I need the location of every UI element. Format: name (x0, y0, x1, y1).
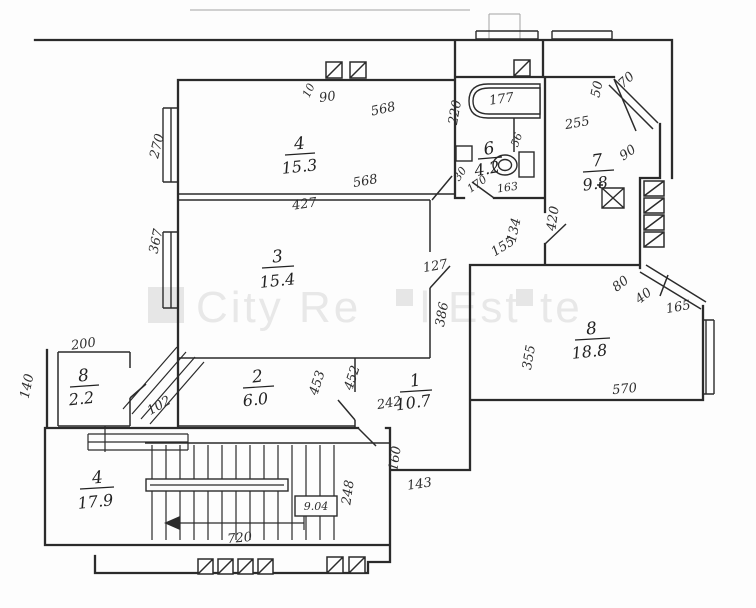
room-number: 8 (585, 318, 598, 339)
outer-walls (35, 40, 703, 573)
watermark-block-icon (396, 289, 413, 306)
room-area: 6.0 (242, 389, 269, 411)
room-label-6: 6 4.2 (472, 138, 502, 180)
direction-arrow-line (178, 516, 304, 530)
dim-label: 453 (306, 369, 328, 398)
dim-label: 140 (18, 373, 38, 400)
room-number: 7 (591, 150, 605, 171)
dim-label: 50 (589, 80, 607, 99)
watermark-text: City Re (196, 283, 361, 332)
dim-label: 200 (69, 335, 97, 353)
room-label-2: 2 6.0 (242, 367, 274, 411)
dim-label: 165 (665, 298, 692, 317)
room-label-4: 4 15.3 (281, 134, 318, 178)
watermark-text: te (540, 283, 583, 332)
floor-plan-drawing: City Re l Est te (0, 0, 756, 608)
room-number: 8 (77, 365, 90, 386)
dim-label: 80 (610, 273, 632, 295)
dim-label: 143 (406, 475, 433, 493)
toilet-bowl-inner (499, 160, 512, 171)
dim-label: 102 (145, 393, 174, 418)
room-number: 6 (482, 138, 496, 160)
dim-label: 248 (339, 479, 357, 507)
dim-label: 90 (617, 142, 639, 164)
floor-plan-scan: City Re l Est te (0, 0, 756, 608)
lift-box-label: 9.04 (304, 500, 329, 513)
room-label-stairhall: 4 17.9 (77, 468, 114, 513)
room-area: 17.9 (77, 490, 114, 513)
room-label-3: 3 15.4 (259, 247, 296, 292)
dim-label: 90 (318, 89, 336, 106)
corner-entrance-door (609, 79, 658, 131)
room-area: 2.2 (67, 388, 95, 410)
room-number: 4 (292, 134, 306, 155)
room-number: 2 (250, 367, 264, 388)
dim-label: 160 (386, 445, 404, 472)
walls (35, 40, 703, 573)
dim-label: 10 (300, 81, 318, 99)
room-area: 18.8 (571, 340, 608, 363)
dim-label: 127 (422, 257, 450, 276)
dim-label: 568 (352, 172, 379, 191)
dim-label: 30 (451, 165, 470, 184)
room-area: 9.8 (581, 172, 609, 194)
dim-label: 40 (632, 285, 655, 308)
dim-label: 163 (496, 180, 519, 196)
dim-label: 270 (147, 132, 168, 161)
dim-label: 220 (446, 99, 465, 127)
dim-label: 255 (563, 114, 591, 133)
dim-label: 720 (227, 530, 253, 547)
dim-label: 70 (615, 69, 637, 91)
dim-label: 56 (508, 131, 525, 149)
dim-label: 570 (612, 381, 638, 399)
room-area: 15.3 (281, 155, 318, 178)
dim-label: 568 (370, 100, 397, 120)
room-number: 4 (90, 468, 104, 489)
watermark-block-icon (516, 289, 533, 306)
dim-label: 420 (544, 205, 562, 233)
dim-label: 355 (520, 344, 539, 371)
room-area: 15.4 (259, 269, 296, 292)
dim-label: 427 (290, 195, 318, 214)
dim-label: 452 (341, 364, 363, 393)
sink-icon (456, 146, 472, 161)
room-number: 1 (409, 370, 423, 391)
room-label-closet: 8 2.2 (67, 365, 99, 409)
watermark: City Re l Est te (148, 283, 583, 332)
landing-steps (88, 426, 188, 452)
toilet-tank-icon (519, 152, 534, 177)
scan-artifact-lines (190, 10, 520, 40)
room-number: 3 (271, 247, 284, 268)
